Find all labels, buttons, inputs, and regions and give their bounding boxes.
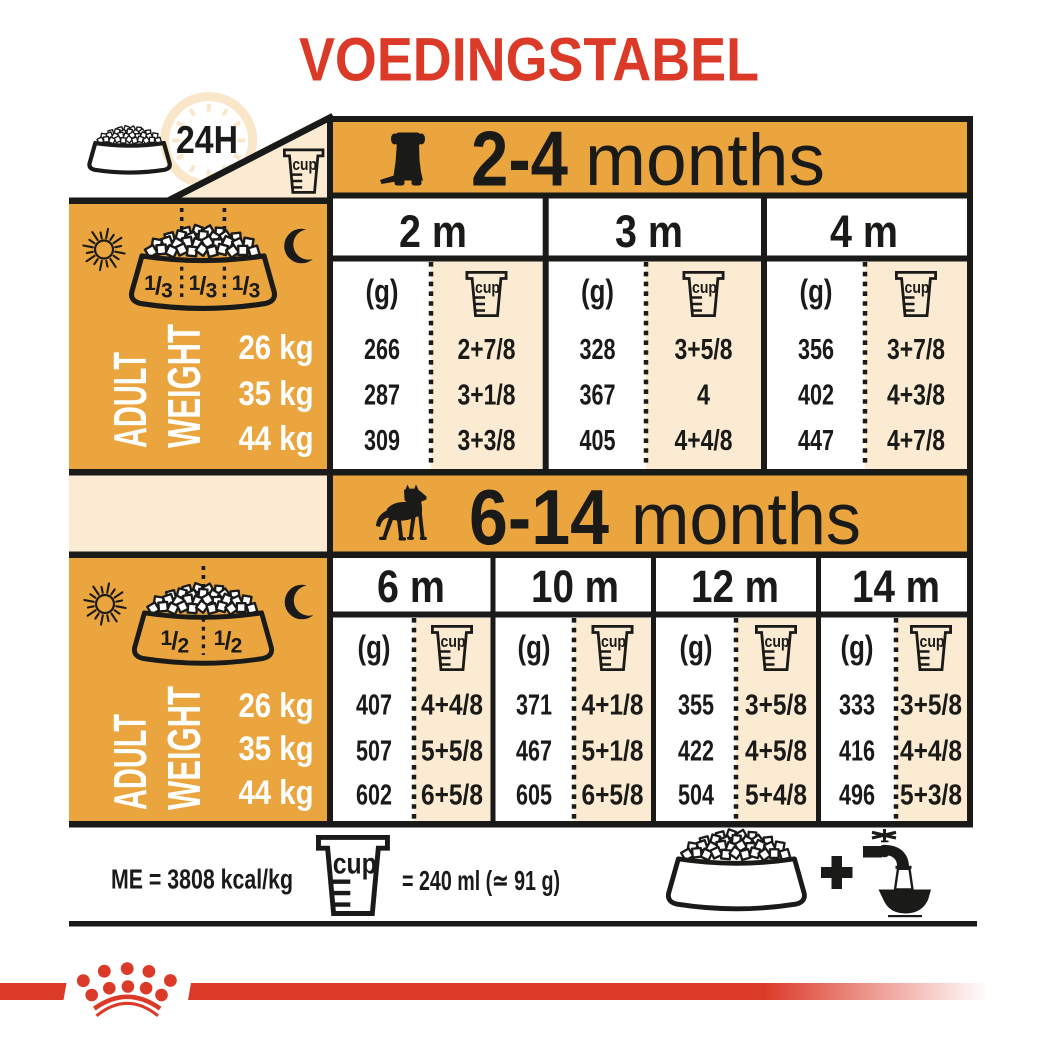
svg-text:WEIGHT: WEIGHT — [158, 686, 210, 810]
svg-text:407: 407 — [356, 690, 392, 722]
svg-text:(g): (g) — [581, 273, 614, 310]
svg-text:months: months — [631, 479, 861, 560]
svg-text:26 kg: 26 kg — [239, 687, 314, 725]
svg-text:3: 3 — [161, 280, 173, 303]
svg-text:6+5/8: 6+5/8 — [582, 780, 644, 812]
svg-text:14 m: 14 m — [852, 561, 940, 612]
svg-text:ADULT: ADULT — [104, 714, 156, 810]
svg-text:cup: cup — [475, 278, 500, 297]
svg-text:cup: cup — [292, 155, 317, 174]
svg-text:ME = 3808 kcal/kg: ME = 3808 kcal/kg — [111, 864, 293, 895]
svg-text:504: 504 — [678, 780, 714, 812]
svg-text:5+5/8: 5+5/8 — [421, 736, 483, 768]
svg-text:6-14: 6-14 — [469, 473, 609, 561]
svg-text:5+1/8: 5+1/8 — [582, 736, 644, 768]
svg-text:VOEDINGSTABEL: VOEDINGSTABEL — [299, 26, 759, 94]
svg-text:3: 3 — [249, 280, 261, 303]
svg-text:WEIGHT: WEIGHT — [158, 324, 210, 448]
svg-text:3 m: 3 m — [615, 206, 683, 257]
svg-text:cup: cup — [333, 848, 377, 881]
svg-text:3+7/8: 3+7/8 — [887, 334, 945, 366]
svg-text:44 kg: 44 kg — [239, 420, 314, 458]
svg-text:(g): (g) — [680, 629, 713, 666]
svg-text:422: 422 — [678, 736, 714, 768]
svg-text:cup: cup — [765, 632, 790, 651]
svg-text:4+3/8: 4+3/8 — [887, 380, 945, 412]
svg-text:467: 467 — [516, 736, 552, 768]
svg-text:4+7/8: 4+7/8 — [887, 425, 945, 457]
svg-text:266: 266 — [364, 334, 400, 366]
svg-text:cup: cup — [920, 632, 945, 651]
svg-text:496: 496 — [839, 780, 875, 812]
svg-text:4+4/8: 4+4/8 — [900, 736, 962, 768]
svg-text:6 m: 6 m — [377, 561, 445, 612]
svg-text:287: 287 — [364, 380, 400, 412]
svg-text:309: 309 — [364, 425, 400, 457]
svg-text:3+3/8: 3+3/8 — [458, 425, 516, 457]
svg-text:cup: cup — [441, 632, 466, 651]
svg-text:371: 371 — [516, 690, 552, 722]
svg-text:24H: 24H — [176, 119, 238, 162]
svg-text:3+5/8: 3+5/8 — [900, 690, 962, 722]
svg-text:507: 507 — [356, 736, 392, 768]
svg-text:= 240 ml (≃ 91 g): = 240 ml (≃ 91 g) — [402, 865, 560, 896]
svg-text:3+1/8: 3+1/8 — [458, 380, 516, 412]
svg-text:10 m: 10 m — [531, 561, 619, 612]
svg-text:2: 2 — [231, 635, 243, 658]
svg-text:12 m: 12 m — [691, 561, 779, 612]
svg-text:355: 355 — [678, 690, 714, 722]
svg-text:(g): (g) — [800, 273, 833, 310]
svg-text:4+4/8: 4+4/8 — [675, 425, 733, 457]
svg-text:3+5/8: 3+5/8 — [745, 690, 807, 722]
svg-text:(g): (g) — [841, 629, 874, 666]
svg-text:5+4/8: 5+4/8 — [745, 780, 807, 812]
svg-text:4+1/8: 4+1/8 — [582, 690, 644, 722]
svg-text:4+4/8: 4+4/8 — [421, 690, 483, 722]
svg-text:cup: cup — [692, 278, 717, 297]
svg-text:(g): (g) — [358, 629, 391, 666]
svg-text:months: months — [585, 120, 825, 201]
svg-text:4+5/8: 4+5/8 — [745, 736, 807, 768]
svg-text:cup: cup — [601, 632, 626, 651]
svg-text:602: 602 — [356, 780, 392, 812]
svg-text:2-4: 2-4 — [471, 115, 568, 203]
svg-text:(g): (g) — [518, 629, 551, 666]
svg-text:2 m: 2 m — [399, 206, 467, 257]
svg-text:(g): (g) — [366, 273, 399, 310]
svg-text:35 kg: 35 kg — [239, 375, 314, 413]
svg-text:5+3/8: 5+3/8 — [900, 780, 962, 812]
svg-text:4 m: 4 m — [830, 206, 898, 257]
svg-text:2+7/8: 2+7/8 — [458, 334, 516, 366]
svg-text:367: 367 — [580, 380, 616, 412]
svg-text:333: 333 — [839, 690, 875, 722]
svg-text:3: 3 — [206, 280, 218, 303]
svg-text:2: 2 — [177, 635, 189, 658]
svg-text:447: 447 — [798, 425, 834, 457]
svg-text:4: 4 — [697, 380, 710, 412]
svg-text:405: 405 — [580, 425, 616, 457]
svg-text:402: 402 — [798, 380, 834, 412]
svg-text:44 kg: 44 kg — [239, 774, 314, 812]
svg-text:605: 605 — [516, 780, 552, 812]
svg-text:cup: cup — [905, 278, 930, 297]
svg-text:26 kg: 26 kg — [239, 329, 314, 367]
svg-text:416: 416 — [839, 736, 875, 768]
svg-text:356: 356 — [798, 334, 834, 366]
svg-text:3+5/8: 3+5/8 — [675, 334, 733, 366]
svg-text:328: 328 — [580, 334, 616, 366]
svg-text:35 kg: 35 kg — [239, 730, 314, 768]
svg-text:6+5/8: 6+5/8 — [421, 780, 483, 812]
svg-text:ADULT: ADULT — [104, 352, 156, 448]
